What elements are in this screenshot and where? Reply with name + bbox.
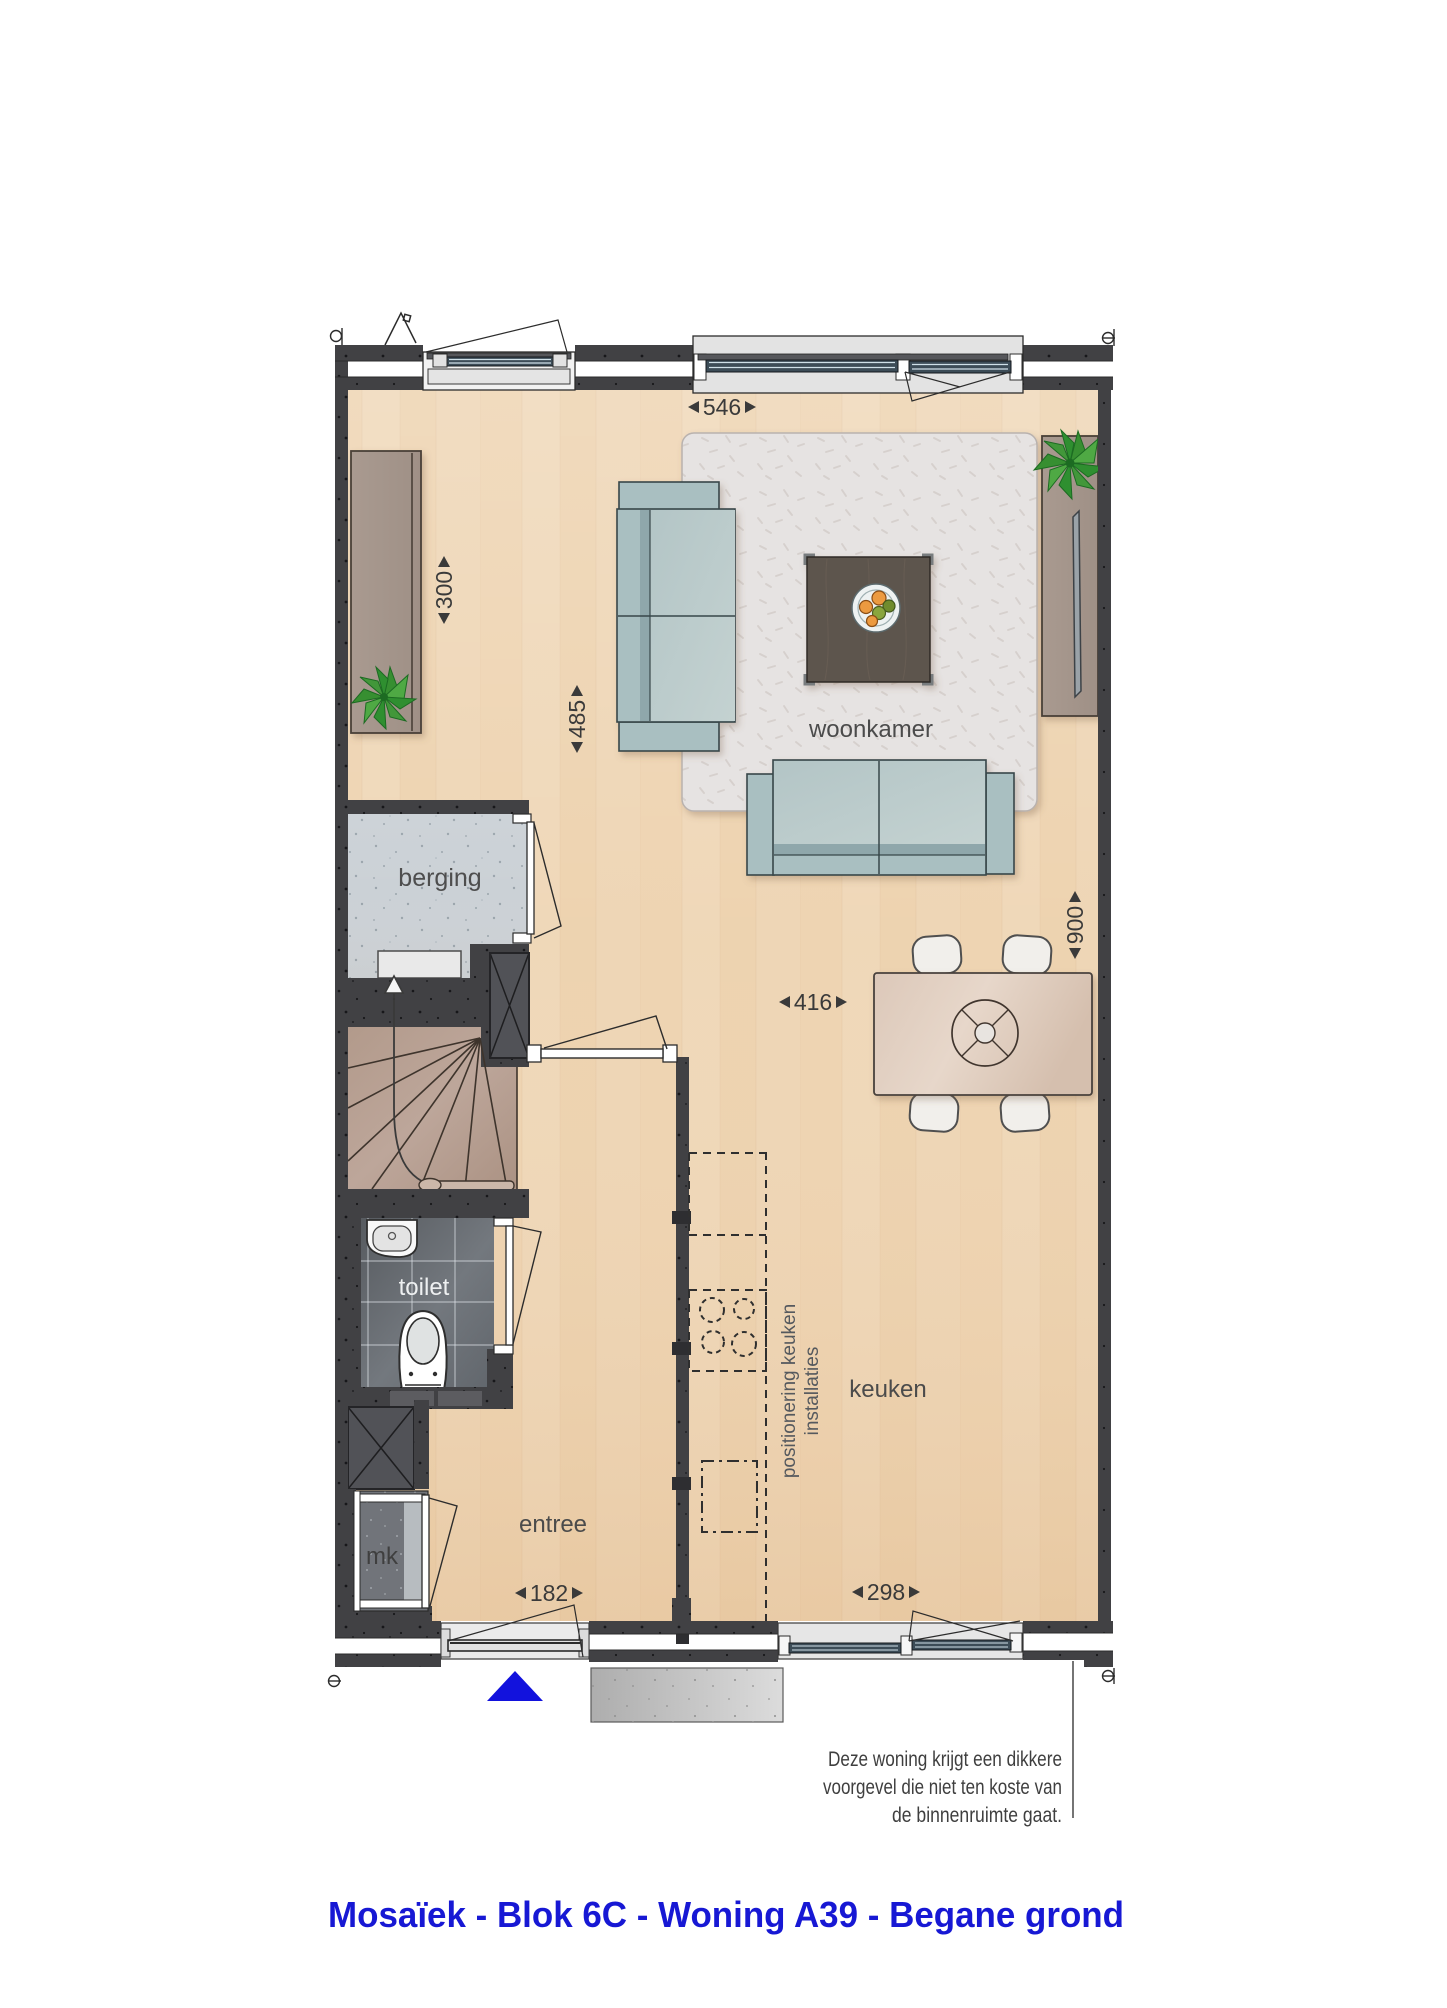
svg-text:toilet: toilet [399, 1274, 450, 1301]
svg-text:485: 485 [564, 700, 590, 738]
svg-text:berging: berging [398, 864, 481, 892]
svg-text:positionering keuken: positionering keuken [779, 1304, 800, 1478]
svg-text:keuken: keuken [849, 1376, 926, 1403]
svg-text:900: 900 [1062, 906, 1088, 944]
svg-text:182: 182 [530, 1580, 568, 1606]
svg-text:de binnenruimte gaat.: de binnenruimte gaat. [892, 1804, 1062, 1827]
svg-text:woonkamer: woonkamer [808, 716, 933, 743]
svg-text:Mosaïek - Blok 6C - Woning A39: Mosaïek - Blok 6C - Woning A39 - Begane … [328, 1894, 1124, 1935]
svg-text:installaties: installaties [802, 1347, 823, 1436]
svg-text:voorgevel die niet ten koste v: voorgevel die niet ten koste van [823, 1776, 1062, 1799]
svg-text:416: 416 [794, 989, 832, 1015]
svg-text:entree: entree [519, 1511, 587, 1538]
svg-text:Deze woning krijgt een dikkere: Deze woning krijgt een dikkere [828, 1748, 1062, 1771]
svg-text:300: 300 [431, 571, 457, 609]
svg-text:546: 546 [703, 394, 741, 420]
svg-text:298: 298 [867, 1579, 905, 1605]
svg-text:mk: mk [366, 1543, 399, 1570]
